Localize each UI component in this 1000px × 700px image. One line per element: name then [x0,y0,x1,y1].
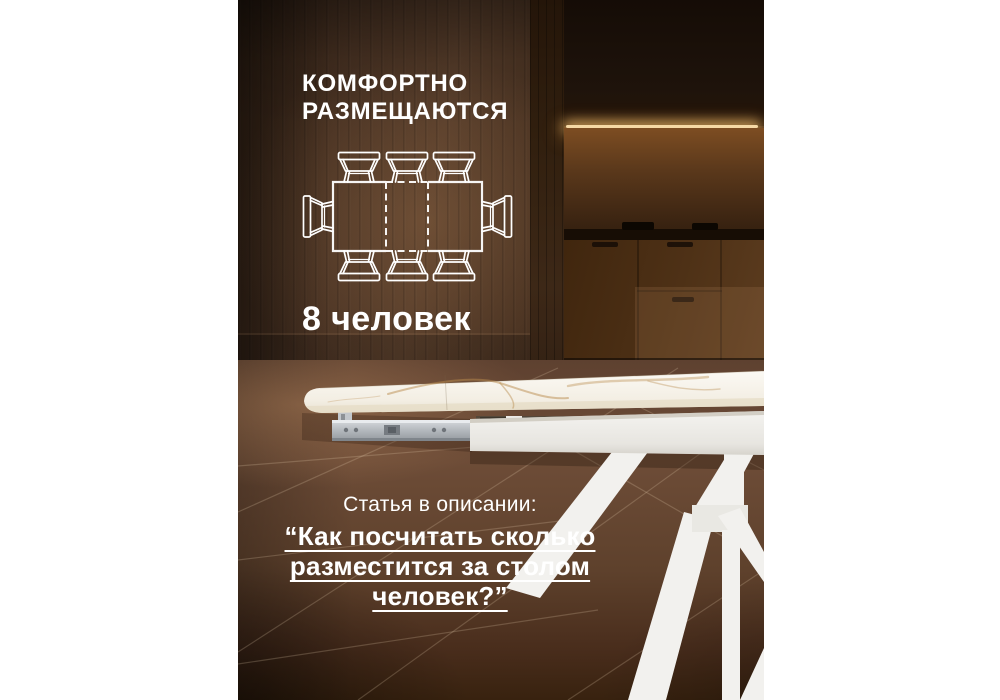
chair-icon [339,251,380,281]
article-quote-line: “Как посчитать сколько [238,521,642,551]
article-quote-line: разместится за столом [238,551,642,581]
extension-leaf-dashed-lines [386,182,428,251]
leg-diagonal-brace [740,648,764,700]
article-note: Статья в описании: “Как посчитать скольк… [238,492,642,611]
chair-icon [304,196,334,237]
capacity-label: 8 человек [302,299,471,339]
article-quote: “Как посчитать сколько разместится за ст… [238,521,642,611]
product-infographic: КОМФОРТНО РАЗМЕЩАЮТСЯ [0,0,1000,700]
chair-icon [387,153,428,183]
seating-diagram [302,151,513,282]
chair-icon [434,251,475,281]
leg-post [722,530,740,700]
headline: КОМФОРТНО РАЗМЕЩАЮТСЯ [302,70,508,126]
chair-icon [387,251,428,281]
headline-line-1: КОМФОРТНО [302,70,508,98]
headline-line-2: РАЗМЕЩАЮТСЯ [302,98,508,126]
marble-tabletop [304,371,764,413]
leg-post [724,450,744,508]
table-icon [333,182,482,251]
chair-icon [339,153,380,183]
article-intro: Статья в описании: [238,492,642,518]
article-quote-line: человек?” [238,581,642,611]
photo-canvas: КОМФОРТНО РАЗМЕЩАЮТСЯ [238,0,764,700]
chair-icon [434,153,475,183]
chair-icon [482,196,512,237]
